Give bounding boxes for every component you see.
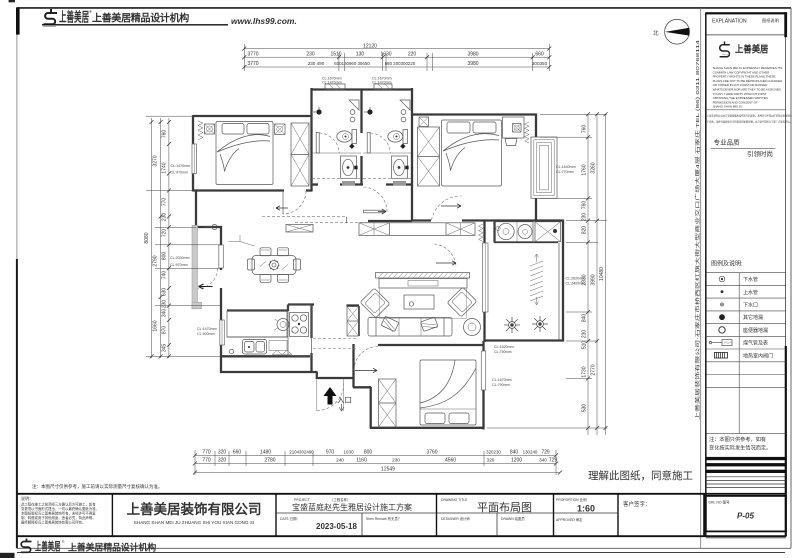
svg-text:230: 230 [306,51,315,57]
svg-text:最终解释权归上善美居装饰有限公司所有。: 最终解释权归上善美居装饰有限公司所有。 [21,520,85,525]
svg-text:510: 510 [582,341,588,350]
svg-text:630: 630 [161,288,167,297]
svg-text:820: 820 [582,226,588,235]
svg-text:上善美居: 上善美居 [35,539,61,552]
svg-text:320: 320 [218,457,227,463]
svg-text:1:60: 1:60 [577,504,595,514]
svg-text:座便器地漏: 座便器地漏 [743,327,768,334]
svg-text:引领时尚: 引领时尚 [747,149,773,158]
svg-text:地热室内阀门: 地热室内阀门 [743,352,773,359]
svg-text:230: 230 [582,330,588,339]
svg-text:130240: 130240 [523,449,538,454]
svg-text:320: 320 [487,457,495,462]
svg-text:760: 760 [582,201,588,210]
svg-text:上善美居: 上善美居 [735,43,768,55]
svg-text:240: 240 [336,457,344,462]
svg-text:840: 840 [582,314,588,323]
svg-text:CL:1670mm: CL:1670mm [492,378,512,382]
svg-text:3770: 3770 [247,61,258,67]
svg-text:CL:1620mm: CL:1620mm [494,345,514,349]
svg-text:CL:970mm: CL:970mm [170,263,188,267]
svg-text:12120: 12120 [363,43,377,49]
svg-text:®: ® [62,540,65,544]
svg-text:专业品质: 专业品质 [714,138,741,147]
svg-text:729: 729 [541,449,550,455]
svg-text:1730: 1730 [582,366,588,377]
svg-text:此工程在施工之前须经三方确认后方可施工，如有: 此工程在施工之前须经三方确认后方可施工，如有 [21,502,96,507]
svg-text:CL:900mm: CL:900mm [197,332,215,336]
svg-text:3980: 3980 [467,61,478,67]
svg-text:230: 230 [392,457,400,462]
svg-text:图纸说明: 图纸说明 [762,17,779,24]
svg-text:320: 320 [218,449,227,455]
svg-text:3770: 3770 [247,51,258,57]
svg-text:2790: 2790 [152,255,158,266]
svg-text:客户签字：: 客户签字： [623,500,651,508]
svg-text:680 200300220: 680 200300220 [385,61,416,66]
svg-text:上善美居精品设计机构: 上善美居精品设计机构 [68,542,156,553]
svg-text:800: 800 [161,252,167,261]
svg-text:320230: 320230 [486,449,501,454]
svg-text:800: 800 [364,449,373,455]
svg-text:理解此图纸，同意施工: 理解此图纸，同意施工 [588,469,693,482]
svg-text:340: 340 [539,457,547,462]
svg-text:2770: 2770 [591,364,597,375]
svg-text:770: 770 [202,457,211,463]
svg-text:729: 729 [549,457,558,463]
svg-text:下水口: 下水口 [743,302,758,309]
svg-text:CL:1470mm: CL:1470mm [197,327,217,331]
svg-text:12549: 12549 [381,467,395,473]
svg-text:本图纸版权归上善美居装饰所有，未经许可不得复: 本图纸版权归上善美居装饰所有，未经许可不得复 [21,511,96,516]
svg-text:1660: 1660 [152,320,158,331]
svg-text:8080: 8080 [144,232,150,243]
svg-text:说明：: 说明： [21,495,33,501]
svg-text:4560: 4560 [445,457,456,463]
svg-text:3990: 3990 [591,274,597,285]
svg-text:PROPORTION 比例: PROPORTION 比例 [556,497,587,502]
svg-text:1480: 1480 [260,449,271,455]
svg-text:DRAWN 绘图员: DRAWN 绘图员 [501,516,525,521]
svg-text:DRL NO 图号: DRL NO 图号 [709,500,731,505]
svg-text:上善美居装饰有限公司: 上善美居装饰有限公司 [127,501,262,517]
svg-text:（工程名称）: （工程名称） [330,497,350,502]
svg-text:870: 870 [161,326,167,335]
svg-text:宝盛蓝庭赵先生雅居设计施工方案: 宝盛蓝庭赵先生雅居设计施工方案 [292,502,412,512]
svg-text:DATE 日期：: DATE 日期： [280,516,300,521]
svg-text:上善美居装饰有限公司·石家庄市桥西区红旗大街大型商业交口广场: 上善美居装饰有限公司·石家庄市桥西区红旗大街大型商业交口广场大厦4层 石家庄 T… [694,39,701,420]
svg-text:230: 230 [161,300,167,309]
svg-text:下水管: 下水管 [743,276,758,283]
svg-text:3270: 3270 [152,155,158,166]
svg-text:CL:790mm: CL:790mm [492,383,510,387]
svg-text:660: 660 [233,449,242,455]
svg-text:APPROVED 审定: APPROVED 审定 [556,517,583,522]
svg-text:CL:1470mm: CL:1470mm [372,81,392,85]
svg-text:上水管: 上水管 [743,289,758,296]
svg-text:于其他，未经书面授权许可转借使用复制传播，本方案不得转让于第: 于其他，未经书面授权许可转借使用复制传播，本方案不得转让于第三方使用单位。 [707,120,792,124]
svg-text:CL:970mm: CL:970mm [171,171,189,175]
svg-text:340: 340 [161,309,167,318]
svg-text:CL:2000mm: CL:2000mm [170,256,190,260]
svg-text:1200: 1200 [511,457,522,463]
svg-text:770: 770 [161,198,167,207]
svg-text:2330: 2330 [582,274,588,285]
svg-text:2780: 2780 [264,457,275,463]
svg-text:上善美居: 上善美居 [59,9,89,25]
svg-text:3980: 3980 [467,51,478,57]
svg-text:变化按实际发生情况而定。: 变化按实际发生情况而定。 [709,444,771,452]
svg-text:230 490: 230 490 [308,61,325,66]
svg-text:10480: 10480 [599,267,605,281]
svg-text:530: 530 [582,404,588,413]
svg-text:注：本图只供参考，如有: 注：本图只供参考，如有 [709,435,766,443]
svg-text:1030: 1030 [343,449,354,454]
svg-text:图例及说明:: 图例及说明: [711,260,743,268]
svg-text:P-05: P-05 [737,512,754,521]
svg-text:CL:1640mm: CL:1640mm [556,165,576,169]
svg-text:970: 970 [326,449,335,455]
svg-text:变更须以书面形式提出，一切以最终确认图纸为准。: 变更须以书面形式提出，一切以最终确认图纸为准。 [21,506,99,511]
svg-text:平面布局图: 平面布局图 [477,501,532,514]
svg-text:EXPLANATION: EXPLANATION [712,19,747,25]
svg-text:CL:790mm: CL:790mm [494,350,512,354]
svg-text:220: 220 [408,51,417,57]
svg-text:www.lhs99.com.: www.lhs99.com. [231,16,297,26]
svg-text:230: 230 [582,213,588,222]
svg-text:SHANG SHAN MEI JU: SHANG SHAN MEI JU [713,105,743,109]
svg-text:600130960 30650: 600130960 30650 [334,61,370,66]
svg-text:1630: 1630 [380,51,391,57]
svg-text:345: 345 [161,344,167,353]
svg-text:DESIGNER 设计师: DESIGNER 设计师 [441,516,470,521]
svg-text:CL:770mm: CL:770mm [556,170,574,174]
svg-text:760: 760 [161,130,167,139]
svg-text:DRAWING TITLE: DRAWING TITLE [441,498,468,502]
svg-text:740: 740 [161,271,167,280]
svg-text:760: 760 [582,125,588,134]
svg-text:770: 770 [202,449,211,455]
svg-text:2104302490: 2104302490 [289,449,314,454]
svg-text:660: 660 [535,51,544,57]
svg-text:1740: 1740 [161,162,167,173]
svg-text:130: 130 [356,51,365,57]
svg-text:840: 840 [510,449,519,455]
svg-text:1510: 1510 [330,51,341,57]
svg-text:3260: 3260 [591,162,597,173]
svg-text:Shen Remark 有无意？: Shen Remark 有无意？ [366,516,401,521]
svg-text:上善美居有权对本方案保留版权及所有专利权利，未经许可不得以任: 上善美居有权对本方案保留版权及所有专利权利，未经许可不得以任何形式复制使用 [707,114,793,118]
svg-text:注：本图尺寸仅供参考，施工前请以实际测量尺寸复核确认为准。: 注：本图尺寸仅供参考，施工前请以实际测量尺寸复核确认为准。 [32,483,163,490]
svg-text:3760: 3760 [426,449,437,455]
svg-text:1760: 1760 [582,164,588,175]
svg-text:北: 北 [653,29,659,37]
svg-text:煤气管及表: 煤气管及表 [743,340,768,347]
svg-text:PROJECT: PROJECT [294,498,310,502]
svg-text:CL:1470mm: CL:1470mm [322,81,342,85]
svg-text:SHANG SHAN MEI JU ZHUANG SHI Y: SHANG SHAN MEI JU ZHUANG SHI YOU XIAN GO… [134,520,254,525]
svg-text:其它地漏: 其它地漏 [743,314,763,321]
svg-text:上善美居精品设计机构: 上善美居精品设计机构 [92,12,189,25]
svg-text:1160: 1160 [356,457,367,463]
svg-text:入口: 入口 [337,396,352,405]
svg-text:230: 230 [161,213,167,222]
svg-text:2023-05-18: 2023-05-18 [316,522,357,531]
svg-text:300350: 300350 [532,61,548,66]
svg-text:720: 720 [161,229,167,238]
svg-text:制、转借或用于其他用途，违者必究，特此声明。: 制、转借或用于其他用途，违者必究，特此声明。 [21,515,96,520]
svg-text:CL:1470mm: CL:1470mm [171,164,191,168]
